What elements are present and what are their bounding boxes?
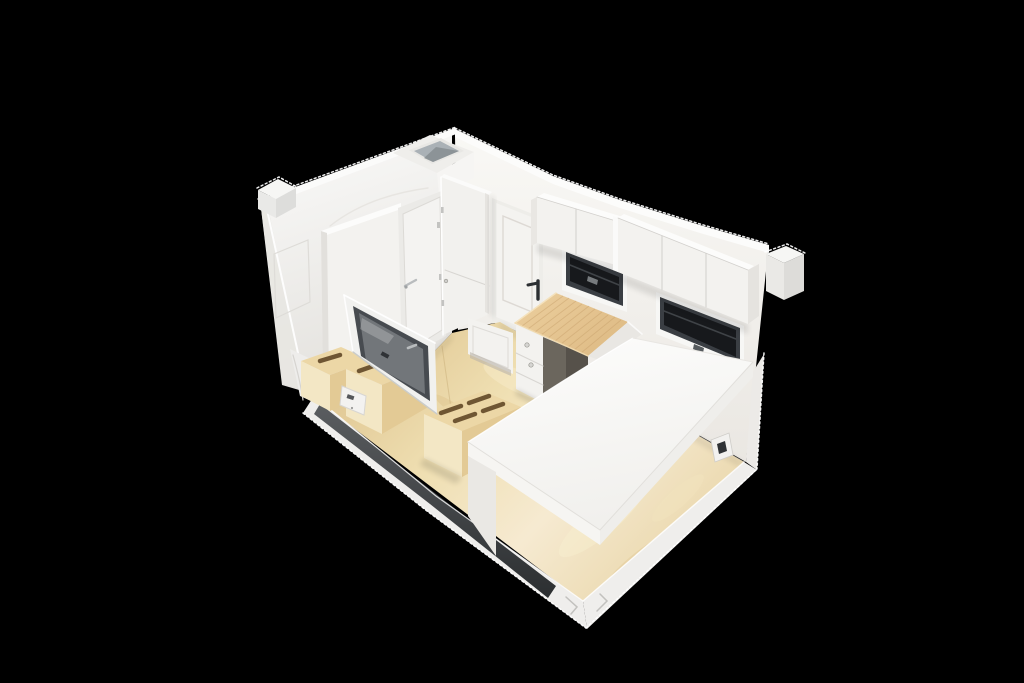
tiny-house-cutaway-render	[0, 0, 1024, 683]
render-canvas	[0, 0, 1024, 683]
black-background	[0, 0, 1024, 683]
